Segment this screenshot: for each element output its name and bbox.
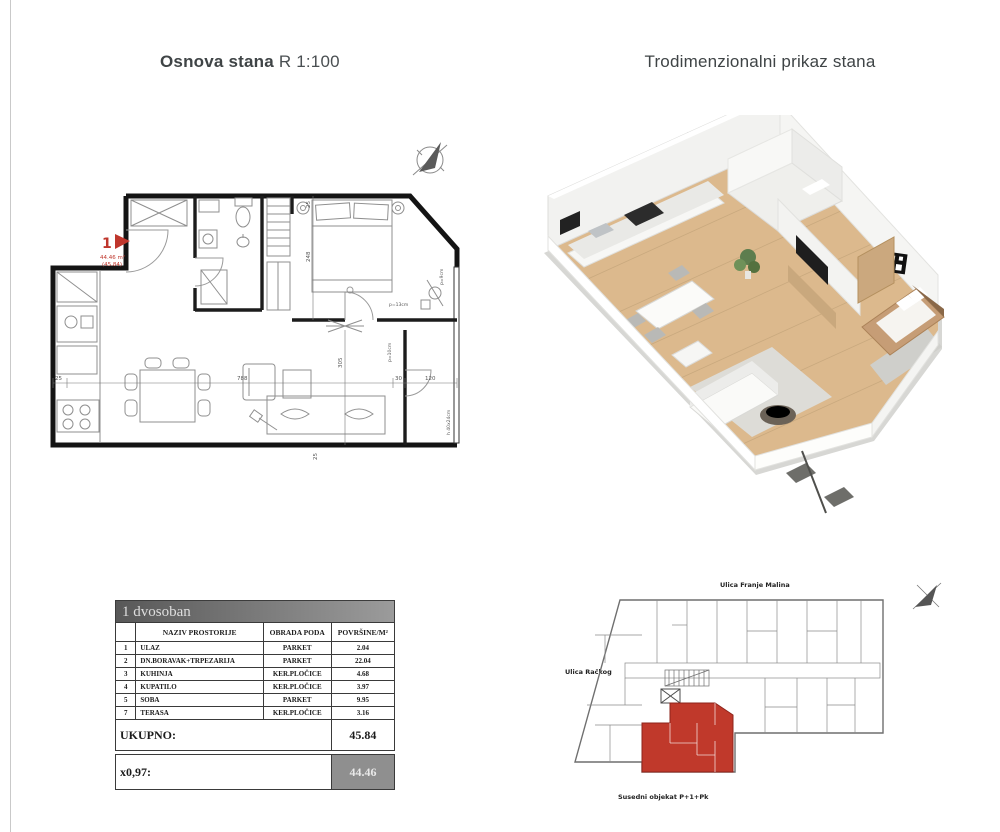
table-row: 2 DN.BORAVAK+TRPEZARIJA PARKET 22.04 [116,655,395,668]
floor-plan-title-text: Osnova stana [160,52,274,71]
render3d-title: Trodimenzionalni prikaz stana [600,52,920,72]
site-plan-drawing: Ulica Franje Malina Ulica Račkog Susedni… [565,575,975,815]
table-row: 7 TERASA KER.PLOČICE 3.16 [116,707,395,720]
total-value: 45.84 [331,720,394,751]
areas-table: 1 dvosoban NAZIV PROSTORIJE OBRADA PODA … [115,600,395,790]
floor-plan-scale: R 1:100 [279,52,340,71]
table-row: 3 KUHINJA KER.PLOČICE 4.68 [116,668,395,681]
dim-bottom-main: 788 [237,376,248,382]
brochure-page: Osnova stana R 1:100 Trodimenzionalni pr… [0,0,1000,832]
render3d-drawing [540,115,970,530]
highlighted-unit [642,703,733,772]
neighbor-note-label: Susedni objekat P+1+Pk [618,793,709,801]
table-total-row: UKUPNO: 45.84 [116,720,395,751]
unit-area-alt: (45.84) [102,262,122,268]
table-main: NAZIV PROSTORIJE OBRADA PODA POVRŠINE/M²… [115,622,395,751]
street-top-label: Ulica Franje Malina [720,581,790,589]
terrace-parapet [454,267,459,443]
col-floor: OBRADA PODA [263,623,331,642]
entry-wardrobe [131,200,187,226]
dim-top-small: 25 [306,201,312,208]
north-compass-icon [413,142,447,175]
elevator [661,689,680,703]
table-row: 1 ULAZ PARKET 2.04 [116,642,395,655]
bathroom-fixtures [199,198,252,304]
table-title: 1 dvosoban [115,600,395,622]
dim-left: 25 [55,376,62,382]
note-door1: p=13cm [389,302,408,308]
table-header-row: NAZIV PROSTORIJE OBRADA PODA POVRŠINE/M² [116,623,395,642]
col-num [116,623,136,642]
dim-wall: 30 [395,376,402,382]
factor-row: x0,97: 44.46 [115,754,395,790]
kitchen-fixtures [57,270,100,443]
factor-label: x0,97: [116,755,332,790]
dim-living-v: 305 [338,357,344,368]
col-area: POVRŠINE/M² [331,623,394,642]
page-left-border [10,0,11,832]
street-left-label: Ulica Račkog [565,668,612,676]
floor-plan-drawing: 1 44.46 m² (45.84) 25 788 30 120 305 248… [45,130,465,480]
floor-plan-title: Osnova stana R 1:100 [160,52,480,72]
dim-bedroom-v: 248 [306,251,312,262]
site-compass-icon [913,583,941,609]
dim-bottom-small: 25 [313,453,319,460]
unit-area: 44.46 m² [100,254,125,261]
note-door2: p=10cm [387,343,393,362]
dim-terrace: 120 [425,376,436,382]
unit-number: 1 [102,236,112,252]
table-row: 4 KUPATILO KER.PLOČICE 3.97 [116,681,395,694]
total-label: UKUPNO: [116,720,332,751]
note-parapet: p=9cm [439,269,445,285]
door-arcs [126,230,431,396]
note-sill: h 40x24cm [446,410,452,435]
factor-value: 44.46 [332,755,395,790]
closet-shelves [267,198,290,310]
col-name: NAZIV PROSTORIJE [136,623,263,642]
table-row: 5 SOBA PARKET 9.95 [116,694,395,707]
living-furniture [125,358,385,434]
interior-walls [195,196,457,445]
